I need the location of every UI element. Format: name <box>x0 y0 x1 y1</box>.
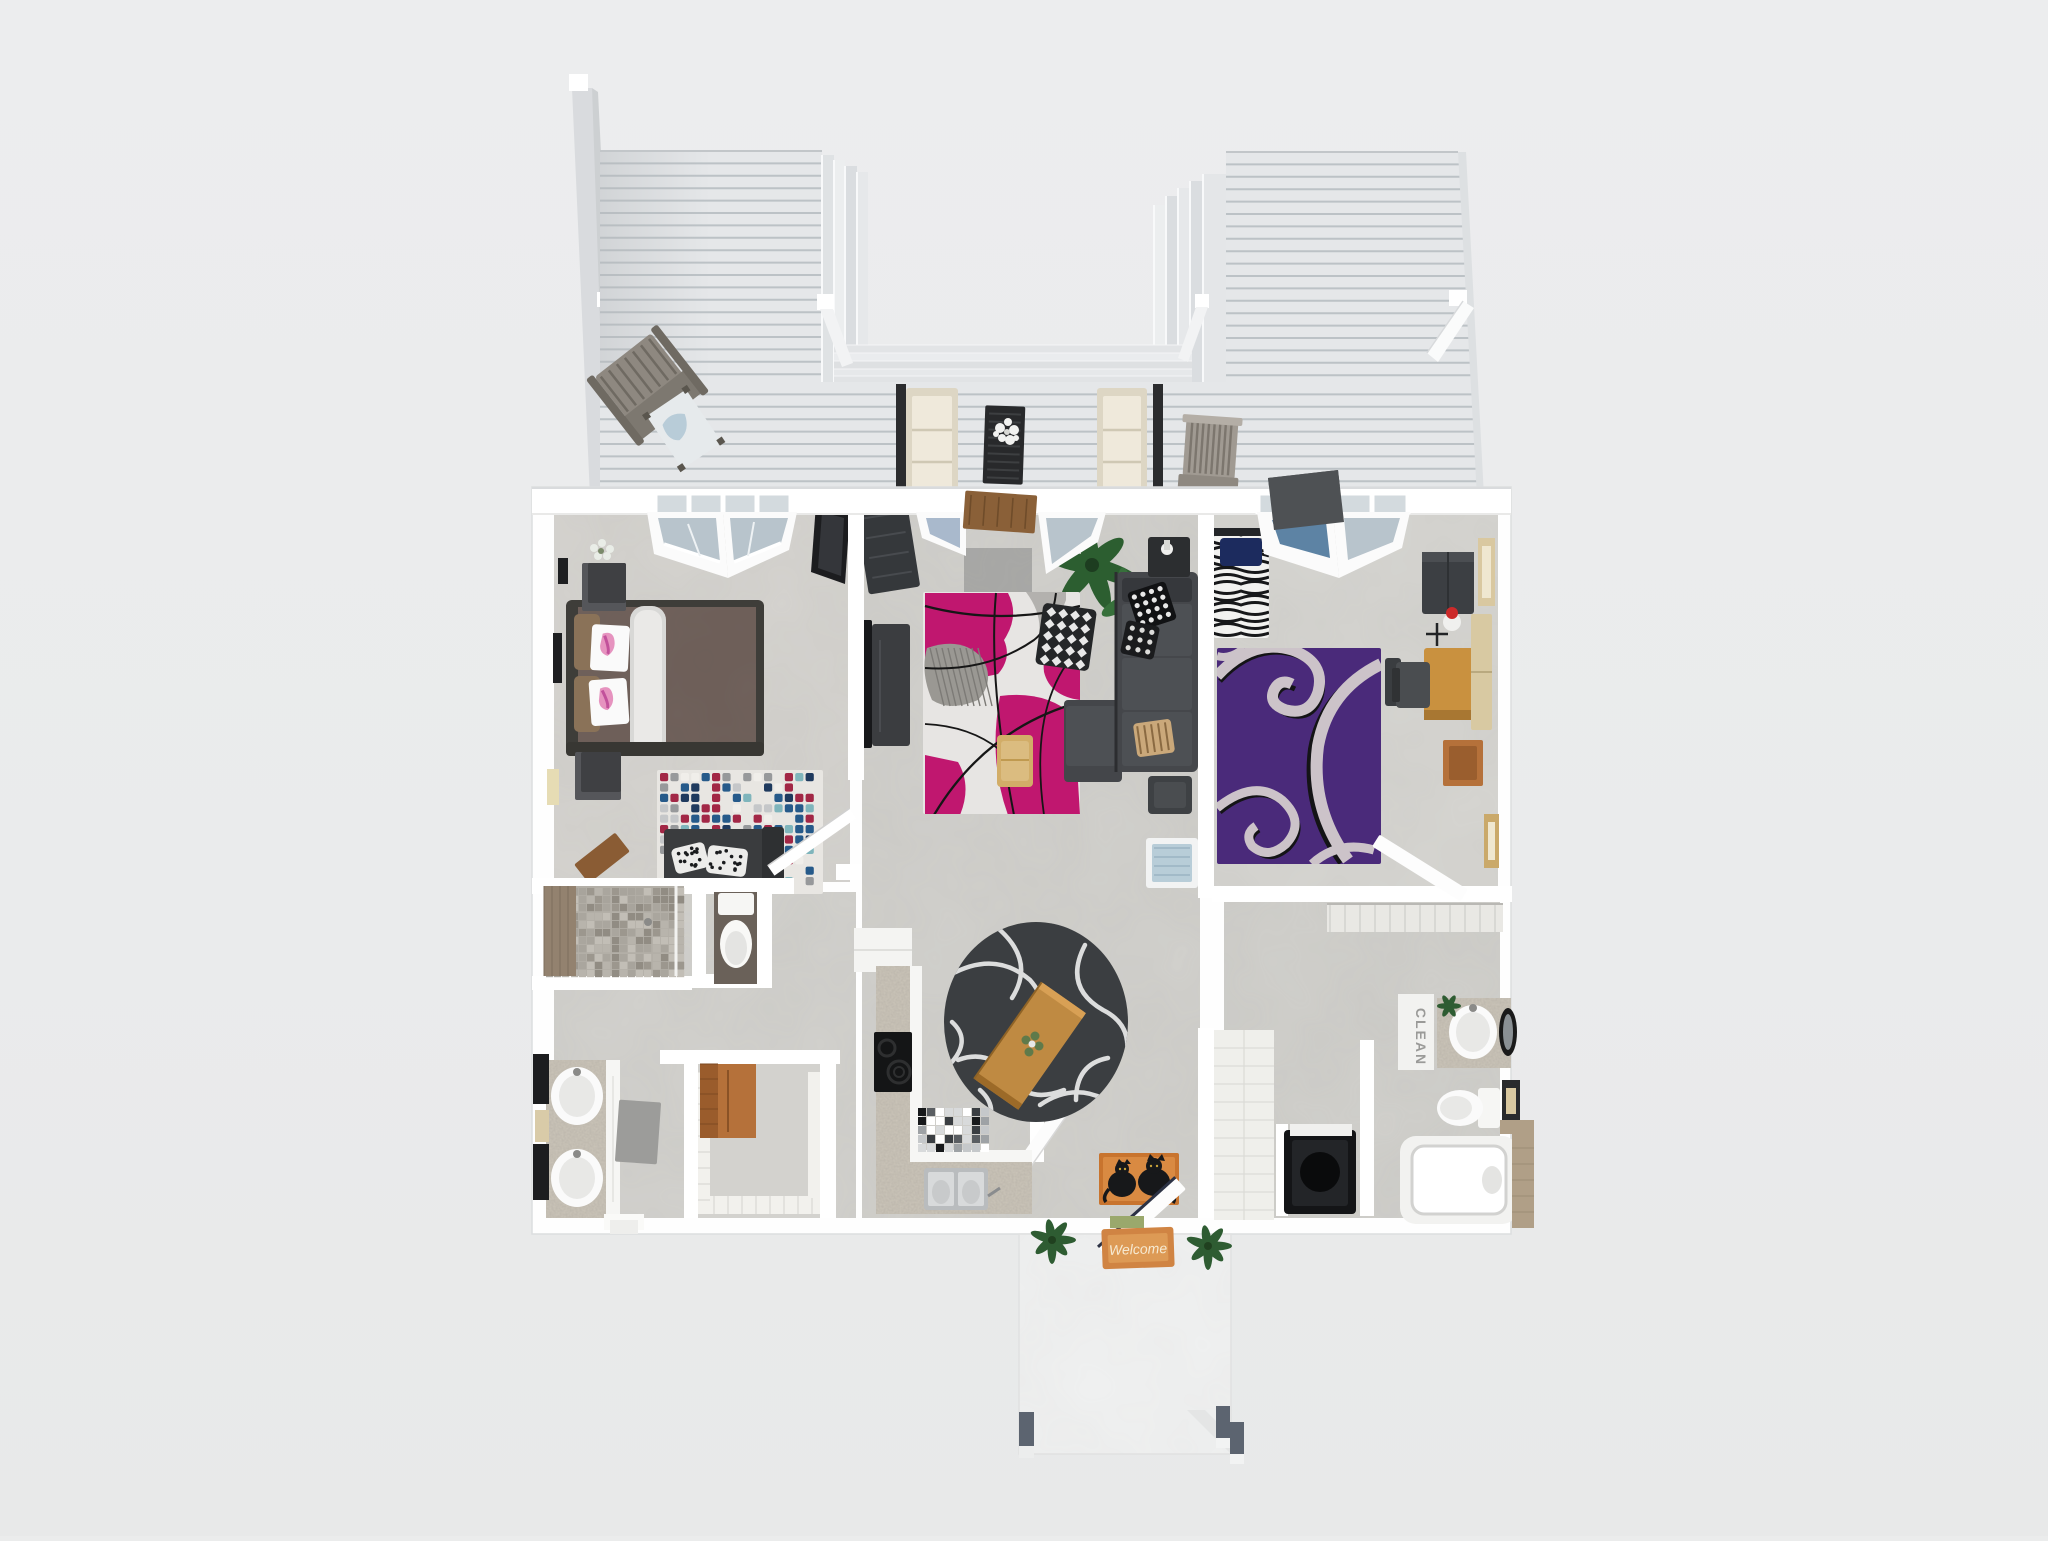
svg-text:Welcome: Welcome <box>1109 1240 1168 1258</box>
svg-text:CLEAN: CLEAN <box>1413 1008 1429 1066</box>
